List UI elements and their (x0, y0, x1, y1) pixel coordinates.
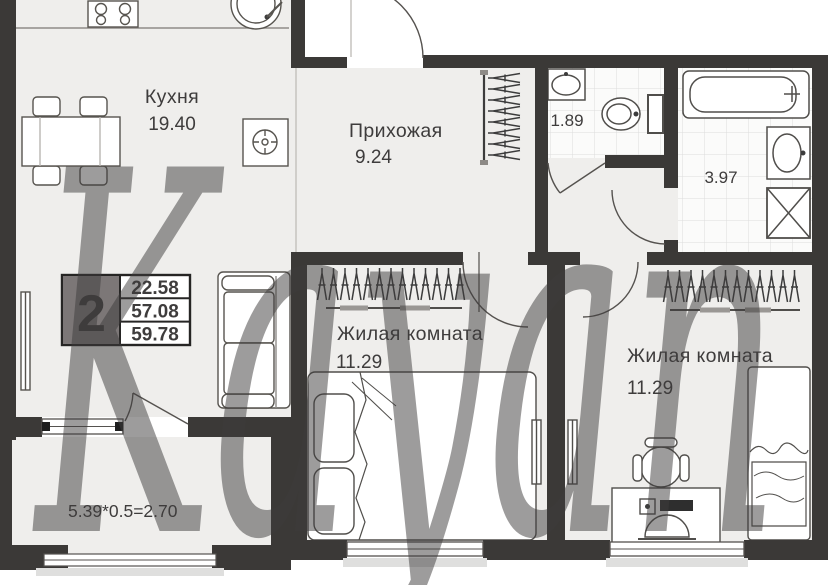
entrance-door-arc (349, 0, 423, 58)
watermark-text: Kayan (32, 67, 781, 585)
radiator-icon (21, 292, 30, 390)
wall (0, 0, 16, 440)
wall (812, 55, 828, 560)
stove-icon (88, 1, 138, 27)
floor-plan-canvas: 2 22.58 57.08 59.78 Кухня 19.40 Прихожая… (0, 0, 828, 585)
floor-plan: 2 22.58 57.08 59.78 Кухня 19.40 Прихожая… (0, 0, 828, 585)
